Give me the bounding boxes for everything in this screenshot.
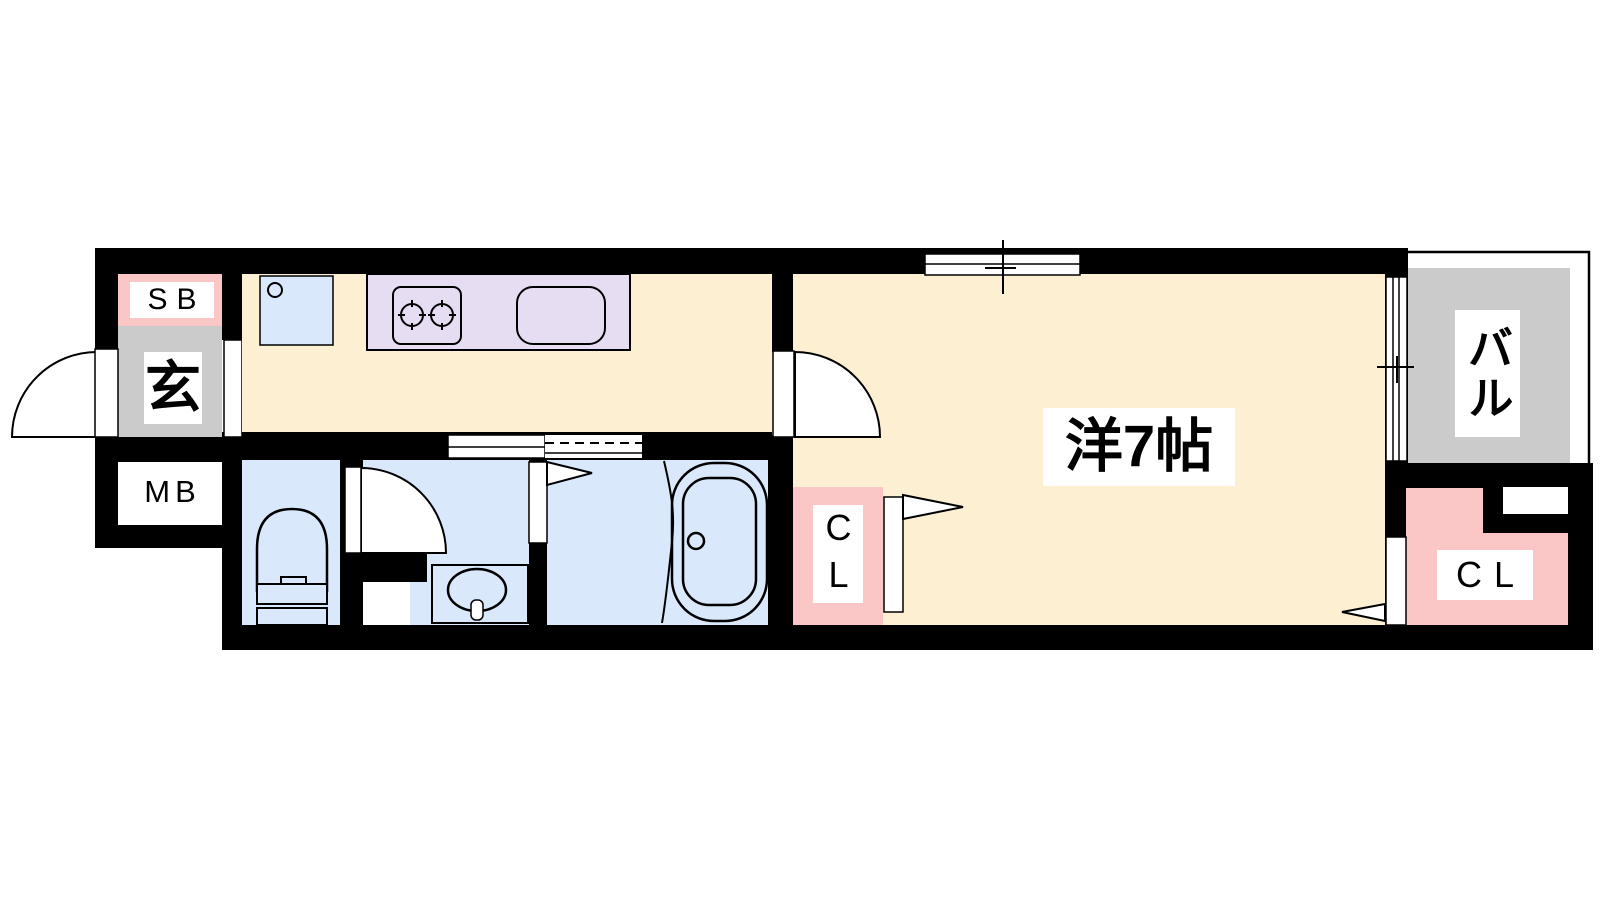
toilet-tank <box>257 584 327 604</box>
mainroom-door-leaf <box>773 351 794 437</box>
meter-box-label: MB <box>126 468 214 514</box>
washing-machine-pan <box>260 276 333 345</box>
entrance-label: 玄 <box>144 352 202 424</box>
balcony-label: バル <box>1455 310 1520 437</box>
hall-closet-label: CL <box>813 505 863 603</box>
floor-plan: SB 玄 MB CL 洋7帖 バル CL <box>0 0 1600 900</box>
washroom-door-leaf <box>345 467 361 553</box>
entrance-step <box>224 340 242 437</box>
kitchen-counter <box>367 274 630 350</box>
wall-entrance-right <box>222 248 242 340</box>
toilet-base <box>257 608 327 625</box>
room-closet-door-leaf <box>1386 537 1406 625</box>
room-closet-niche <box>1503 487 1568 514</box>
room-closet-label: CL <box>1437 550 1533 600</box>
wall-washroom-inner <box>340 553 427 582</box>
entrance-door-swing <box>12 352 97 437</box>
washroom-shaft <box>363 582 410 625</box>
shoe-box-label: SB <box>130 282 214 318</box>
room-bath <box>547 460 768 625</box>
bath-door-leaf <box>529 462 547 543</box>
vanity-faucet <box>471 600 483 620</box>
wall-top <box>95 248 1395 274</box>
divider-opening <box>545 435 642 458</box>
western-room-label: 洋7帖 <box>1043 408 1235 486</box>
entrance-door-leaf <box>95 349 118 437</box>
floor-plan-svg <box>0 0 1600 900</box>
wall-mainroom-left <box>772 248 793 352</box>
hall-closet-door-leaf <box>884 497 903 612</box>
wall-bottom <box>222 625 1593 650</box>
